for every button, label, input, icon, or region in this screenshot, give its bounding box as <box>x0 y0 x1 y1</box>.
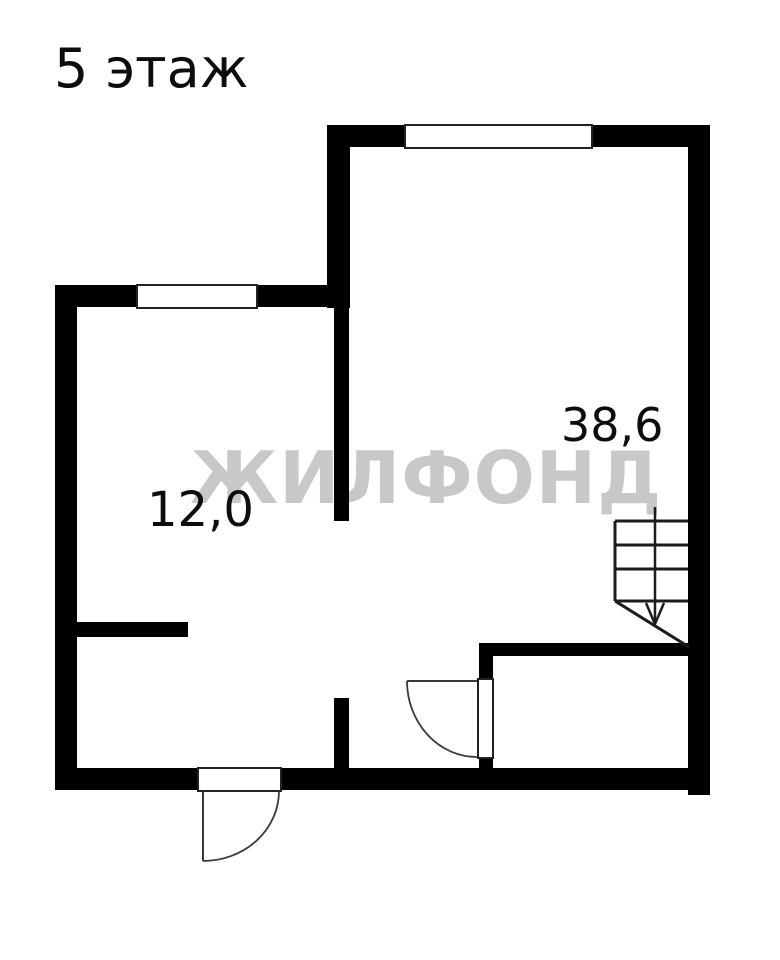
stairs-icon <box>615 521 689 647</box>
room-area-label-large: 38,6 <box>561 402 663 448</box>
stairs-direction-arrow-icon <box>646 507 664 624</box>
entry-door-swing-icon <box>203 791 279 861</box>
floor-plan: 5 этаж ЖИЛФОНД 12,0 38,6 <box>0 0 780 960</box>
floor-title: 5 этаж <box>54 42 248 96</box>
plan-symbols <box>0 0 780 960</box>
room-area-label-small: 12,0 <box>147 486 254 534</box>
bathroom-door-swing-icon <box>407 681 477 757</box>
